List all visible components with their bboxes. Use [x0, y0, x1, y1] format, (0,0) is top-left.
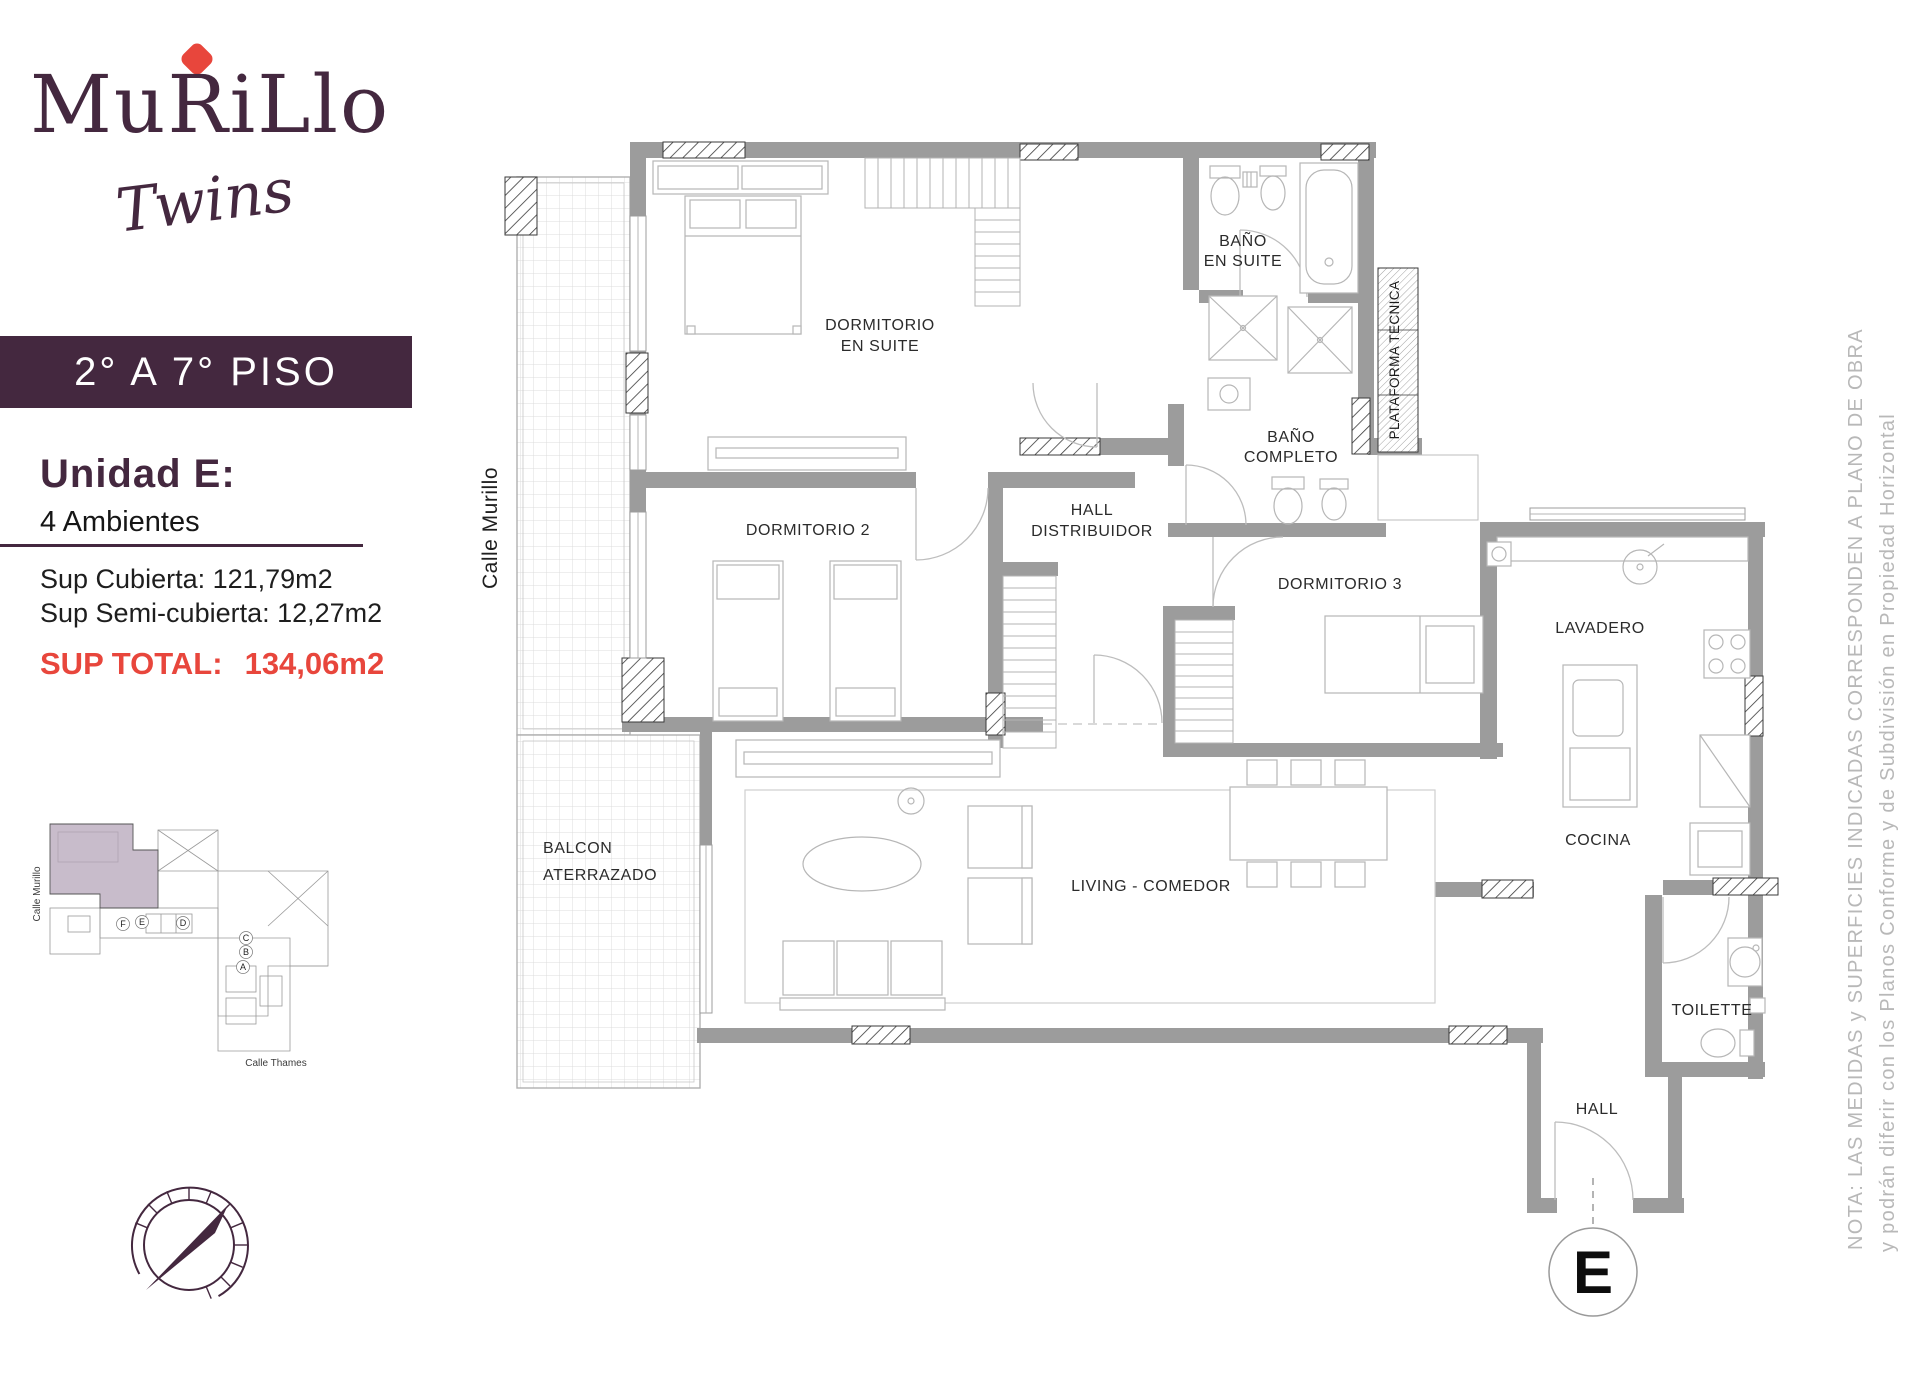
- label-dormitorio-en-suite-2: EN SUITE: [841, 338, 920, 355]
- label-bano-en-suite-2: EN SUITE: [1204, 253, 1283, 270]
- label-lavadero: LAVADERO: [1555, 620, 1645, 637]
- label-plataforma-tecnica: PLATAFORMA TECNICA: [1387, 281, 1402, 440]
- unit-marker-letter: E: [1573, 1239, 1613, 1306]
- plan-street-label: Calle Murillo: [479, 467, 502, 589]
- label-dormitorio-3: DORMITORIO 3: [1278, 576, 1402, 593]
- unit-marker: E: [1549, 1178, 1637, 1316]
- label-cocina: COCINA: [1565, 832, 1631, 849]
- label-balcon-2: ATERRAZADO: [543, 867, 657, 884]
- label-living-comedor: LIVING - COMEDOR: [1071, 878, 1231, 895]
- legal-note-line2: y podrán diferir con los Planos Conforme…: [1877, 413, 1899, 1252]
- label-dormitorio-2: DORMITORIO 2: [746, 522, 870, 539]
- label-bano-en-suite-1: BAÑO: [1219, 230, 1267, 250]
- legal-note-line1: NOTA: LAS MEDIDAS y SUPERFICIES INDICADA…: [1845, 328, 1867, 1250]
- label-toilette: TOILETTE: [1672, 1002, 1753, 1019]
- label-balcon-1: BALCON: [543, 840, 612, 857]
- label-bano-completo-1: BAÑO: [1267, 426, 1315, 446]
- label-hall: HALL: [1576, 1101, 1618, 1118]
- label-bano-completo-2: COMPLETO: [1244, 449, 1338, 466]
- floor-plan: E DORMITORIO EN SUITE BAÑO EN SUITE PLAT…: [0, 0, 1920, 1390]
- legal-note: NOTA: LAS MEDIDAS y SUPERFICIES INDICADA…: [1845, 328, 1899, 1252]
- label-hall-distribuidor-2: DISTRIBUIDOR: [1031, 523, 1153, 540]
- label-dormitorio-en-suite-1: DORMITORIO: [825, 317, 935, 334]
- label-hall-distribuidor-1: HALL: [1071, 502, 1113, 519]
- page: MuRiLlo Twins 2° A 7° PISO Unidad E: 4 A…: [0, 0, 1920, 1390]
- balcony-terrace: [517, 177, 700, 1088]
